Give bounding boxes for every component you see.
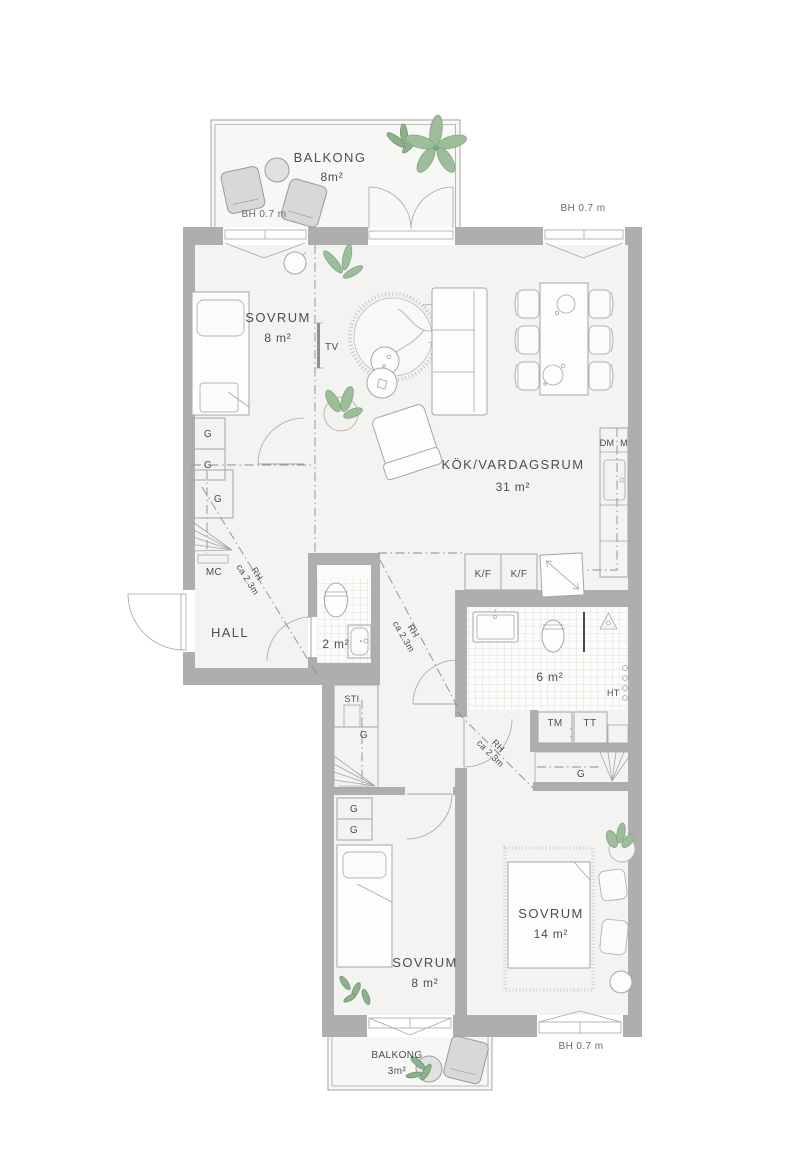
bedroom-se-area: 14 m²	[534, 927, 569, 941]
balcony-table	[265, 158, 289, 182]
tv-label: TV	[325, 342, 339, 353]
bedroom-se-table	[610, 971, 632, 993]
sti-label: STI	[345, 694, 360, 704]
wardrobe-se: G	[577, 769, 585, 780]
bathroom-area: 6 m²	[536, 670, 563, 684]
towel-rail-label: HT	[607, 688, 620, 698]
wardrobe-hall: G	[214, 494, 222, 505]
wardrobe-nw-2: G	[204, 460, 212, 471]
balcony-bottom-area: 3m²	[388, 1066, 407, 1077]
bathroom-sink	[473, 609, 518, 642]
sofa	[432, 288, 487, 415]
kitchen-area: 31 m²	[496, 480, 531, 494]
bedroom-nw-label: SOVRUM	[245, 310, 310, 325]
mc-label: MC	[206, 567, 222, 578]
balcony-top-area: 8m²	[320, 170, 343, 184]
balcony-door-bottom	[367, 1015, 453, 1037]
hall-label: HALL	[211, 625, 249, 640]
bedroom-se-label: SOVRUM	[518, 906, 583, 921]
kitchen-label: KÖK/VARDAGSRUM	[442, 457, 585, 472]
bh-note-bottom-right: BH 0.7 m	[559, 1041, 604, 1052]
dining-set	[515, 283, 613, 395]
fridge-label-1: K/F	[475, 569, 492, 580]
bedroom-sw-area: 8 m²	[411, 976, 438, 990]
entry-door	[128, 590, 195, 652]
stove	[540, 553, 584, 597]
wardrobe-sw-2: G	[350, 825, 358, 836]
bedroom-nw-table	[284, 252, 306, 274]
balcony-top-label: BALKONG	[294, 150, 367, 165]
bedroom-nw-area: 8 m²	[264, 331, 291, 345]
floor-plan-drawing: BALKONG 8m² BH 0.7 m BH 0.7 m SOVRUM 8 m…	[0, 0, 800, 1152]
floor-plan-page: BALKONG 8m² BH 0.7 m BH 0.7 m SOVRUM 8 m…	[0, 0, 800, 1152]
dryer-label: TT	[583, 718, 596, 729]
dishwasher-label: DM	[600, 438, 615, 448]
fridge-label-2: K/F	[511, 569, 528, 580]
washer-label: TM	[547, 718, 562, 729]
micro-label: M	[620, 438, 628, 448]
wardrobe-sw-1: G	[350, 804, 358, 815]
wc-area: 2 m²	[322, 637, 349, 651]
bedroom-sw-label: SOVRUM	[392, 955, 457, 970]
bh-note-top-left: BH 0.7 m	[242, 209, 287, 220]
bh-note-top-right: BH 0.7 m	[561, 203, 606, 214]
balcony-bottom-label: BALKONG	[371, 1050, 422, 1061]
wardrobe-corridor: G	[360, 730, 368, 741]
wardrobe-nw-1: G	[204, 429, 212, 440]
